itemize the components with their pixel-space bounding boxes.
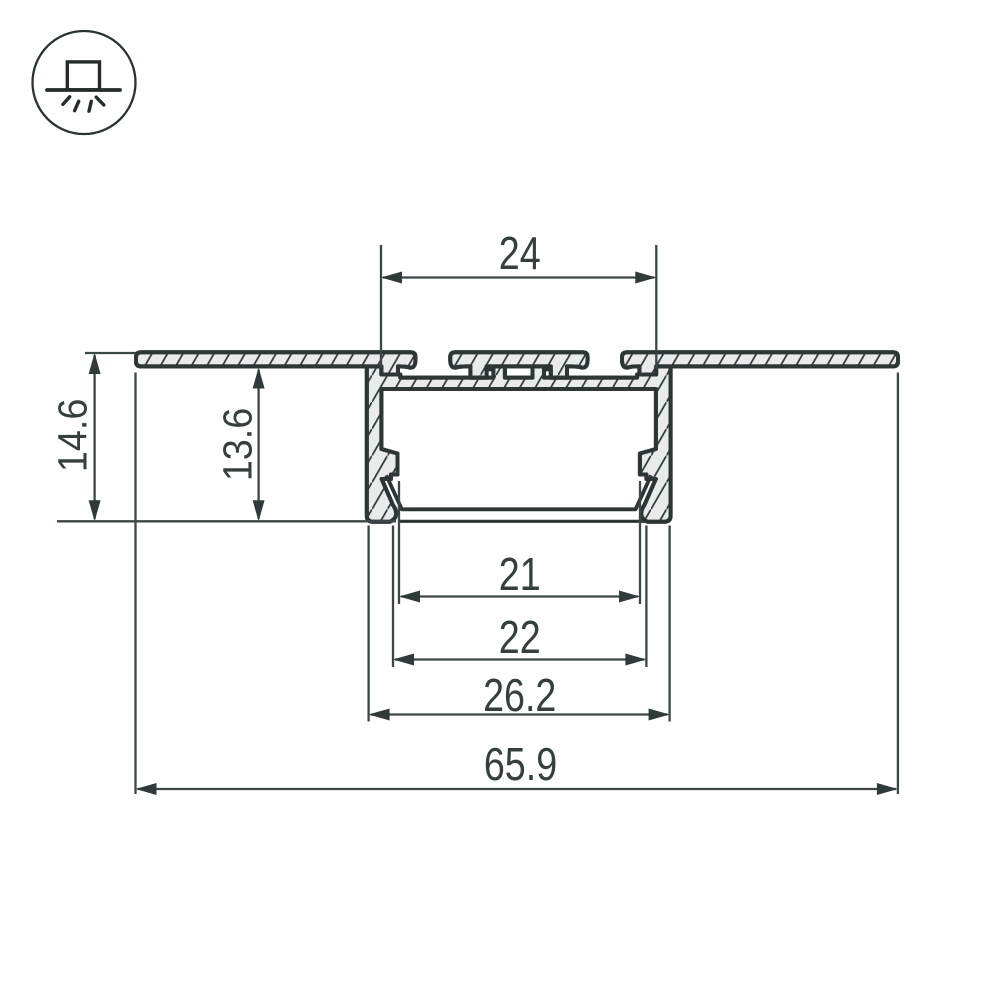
svg-text:26.2: 26.2 <box>483 669 556 721</box>
svg-text:13.6: 13.6 <box>215 408 261 481</box>
svg-text:24: 24 <box>499 227 541 279</box>
svg-text:14.6: 14.6 <box>50 399 96 472</box>
svg-text:21: 21 <box>499 548 541 600</box>
svg-text:65.9: 65.9 <box>484 738 557 790</box>
svg-text:22: 22 <box>499 611 541 663</box>
